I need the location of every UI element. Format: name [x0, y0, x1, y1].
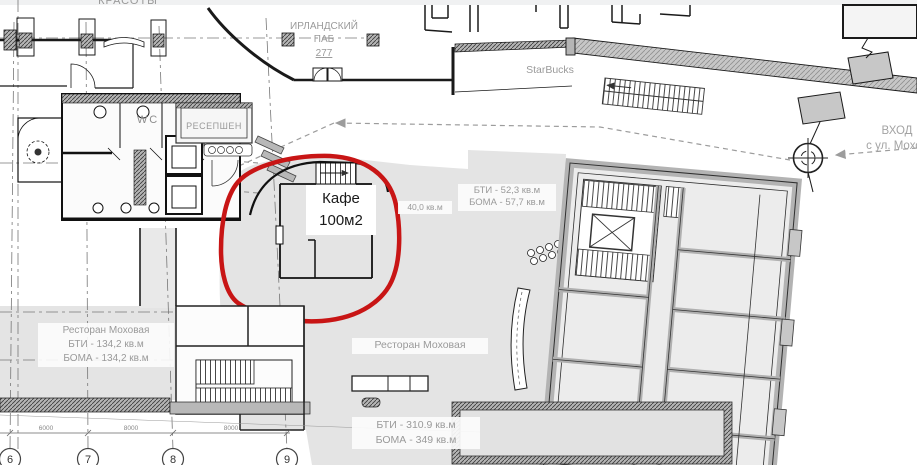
label-irish-pub-number: 277: [284, 47, 364, 60]
floor-plan-canvas: 6000 8000 8000 6 7 8 9: [0, 0, 917, 465]
entrance-survey-marker: [788, 138, 828, 178]
stair-top-right: [602, 78, 704, 114]
grid-bubble-label: 6: [7, 454, 13, 465]
label-bti-52: БТИ - 52,3 кв.м БОМА - 57,7 кв.м: [458, 184, 556, 211]
grid-bubbles: 6 7 8 9: [0, 449, 298, 465]
grid-bubble-label: 9: [284, 454, 290, 465]
label-cafe-highlight: Кафе 100м2: [306, 185, 376, 235]
label-bti-310: БТИ - 310.9 кв.м БОМА - 349 кв.м: [352, 417, 480, 449]
label-restaurant-center: Ресторан Моховая: [352, 338, 488, 354]
label-starbucks: StarBucks: [515, 64, 585, 78]
label-wc: WC: [130, 113, 166, 127]
label-reception: РЕСЕПШЕН: [180, 121, 248, 133]
dimension-value: 8000: [224, 425, 239, 432]
dimension-value: 8000: [124, 425, 139, 432]
dimension-labels: 6000 8000 8000: [39, 425, 239, 432]
bottom-room: [452, 402, 732, 464]
label-irish-pub: ИРЛАНДСКИЙ ПАБ: [284, 20, 364, 46]
dimension-value: 6000: [39, 425, 54, 432]
label-area-40: 40,0 кв.м: [398, 201, 452, 214]
grid-bubble-label: 7: [85, 454, 91, 465]
grid-bubble-label: 8: [170, 454, 176, 465]
label-restaurant-left: Ресторан Моховая БТИ - 134,2 кв.м БОМА -…: [38, 323, 174, 367]
floor-plan-screenshot: 6000 8000 8000 6 7 8 9 КРАСОТЫ ИРЛАНДСКИ…: [0, 0, 917, 465]
label-entrance: ВХОД с ул. Мохов: [852, 124, 917, 154]
label-beauty-salon: КРАСОТЫ: [88, 0, 168, 8]
